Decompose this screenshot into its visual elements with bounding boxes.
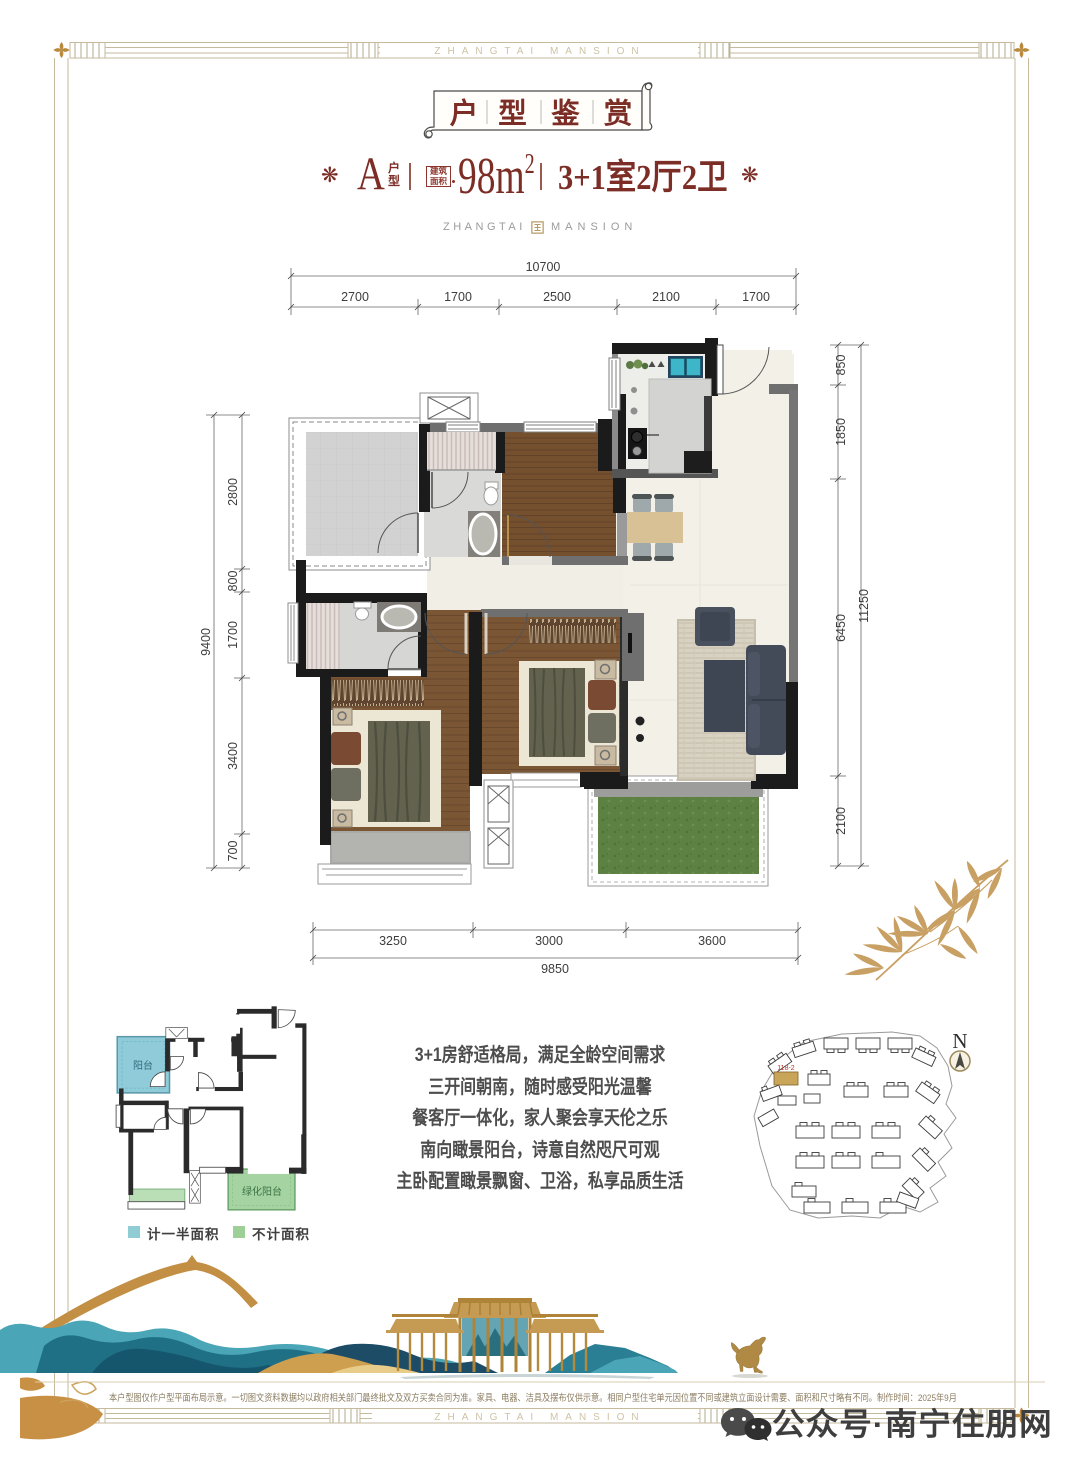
svg-text:6450: 6450 [834, 614, 848, 642]
svg-text:阳台: 阳台 [133, 1059, 153, 1072]
svg-text:800: 800 [226, 571, 240, 592]
svg-text:2800: 2800 [226, 478, 240, 506]
svg-text:3250: 3250 [379, 934, 407, 948]
svg-text:2500: 2500 [543, 290, 571, 304]
svg-text:1850: 1850 [834, 418, 848, 446]
svg-text:2700: 2700 [341, 290, 369, 304]
svg-text:9400: 9400 [199, 628, 213, 656]
svg-text:2100: 2100 [652, 290, 680, 304]
svg-text:10700: 10700 [526, 260, 561, 274]
svg-text:1700: 1700 [226, 621, 240, 649]
svg-text:11250: 11250 [857, 589, 871, 623]
svg-text:850: 850 [834, 355, 848, 376]
svg-text:700: 700 [226, 841, 240, 862]
svg-text:3000: 3000 [535, 934, 563, 948]
svg-text:1700: 1700 [444, 290, 472, 304]
svg-text:3400: 3400 [226, 742, 240, 770]
svg-text:2100: 2100 [834, 807, 848, 835]
svg-text:绿化阳台: 绿化阳台 [242, 1185, 282, 1198]
svg-text:9850: 9850 [541, 962, 569, 976]
svg-text:N: N [952, 1029, 967, 1053]
svg-text:1700: 1700 [742, 290, 770, 304]
svg-text:3600: 3600 [698, 934, 726, 948]
